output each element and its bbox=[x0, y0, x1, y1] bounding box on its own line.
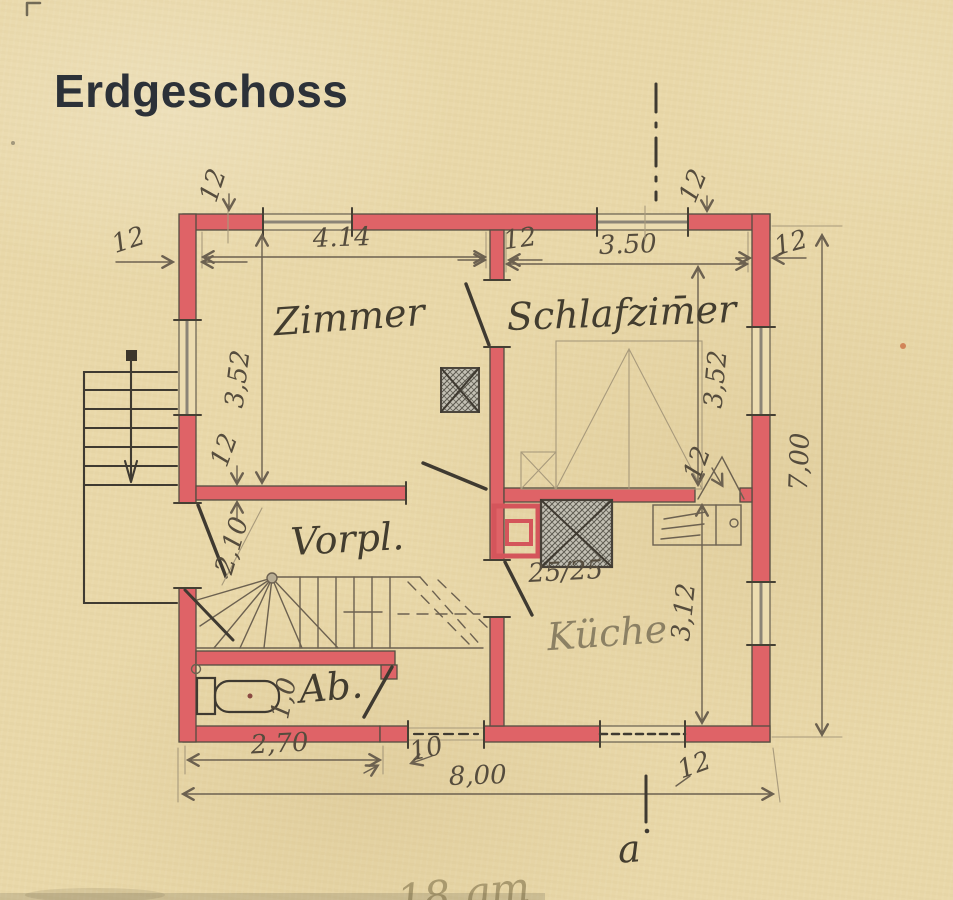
label-vorplatz: Vorpl. bbox=[289, 514, 405, 564]
window-right-schlafzimmer bbox=[747, 327, 775, 415]
kitchen-stove bbox=[653, 505, 741, 545]
wall-zimmer-vorplatz bbox=[196, 486, 406, 500]
window-bottom-kueche bbox=[600, 721, 685, 747]
wall-top-mid bbox=[352, 214, 597, 230]
section-marker-a: a bbox=[616, 826, 642, 871]
dim-house-depth: 7,00 bbox=[784, 432, 816, 491]
paper-stain bbox=[900, 343, 906, 349]
door-pivot-mark bbox=[730, 519, 738, 527]
dim-schlafzimmer-width: 3.50 bbox=[598, 229, 657, 261]
stair-upper-flight-dashed bbox=[398, 577, 490, 648]
label-zimmer: Zimmer bbox=[271, 290, 429, 345]
window-right-kueche bbox=[747, 582, 775, 645]
dim-chimney: 25/25 bbox=[526, 555, 603, 589]
floorplan-drawing: 4.14 3.50 3,52 3,52 7,00 3,12 2,70 bbox=[0, 0, 953, 900]
interior-stair bbox=[185, 573, 490, 648]
wall-bottom-pier bbox=[380, 726, 408, 742]
dim-pier: 10 bbox=[407, 731, 446, 767]
scanned-floorplan-page: Erdgeschoss bbox=[0, 0, 953, 900]
ab-door-leaf bbox=[364, 667, 392, 717]
callout-12-vorplatz-wall: 12 bbox=[205, 430, 245, 471]
label-kueche: Küche bbox=[545, 607, 669, 659]
dim-ab-width: 2,70 bbox=[249, 728, 309, 761]
zimmer-door-leaf bbox=[423, 463, 486, 489]
stair-newel bbox=[267, 573, 277, 583]
wall-thickness-callouts: 12 12 12 12 12 12 12 12 bbox=[108, 165, 811, 786]
wall-center-a bbox=[490, 230, 504, 280]
callout-12-center: 12 bbox=[501, 222, 538, 256]
label-abort: Ab. bbox=[294, 662, 364, 712]
footer-note: 18 qm bbox=[395, 862, 533, 900]
dim-house-width: 8,00 bbox=[448, 760, 507, 792]
wall-left-a bbox=[179, 214, 196, 320]
window-left-zimmer bbox=[174, 320, 201, 415]
callout-12-left: 12 bbox=[108, 221, 149, 260]
stair-winders bbox=[197, 578, 338, 648]
dim-schlafzimmer-depth: 3,52 bbox=[699, 349, 734, 409]
bed-outline bbox=[521, 341, 702, 489]
flue-inner bbox=[507, 521, 531, 544]
exterior-stair bbox=[84, 350, 177, 603]
wall-right-a bbox=[752, 214, 770, 327]
wall-bottom-c bbox=[685, 726, 770, 742]
wall-right-b bbox=[752, 415, 770, 582]
callout-12-bottom-right: 12 bbox=[674, 746, 715, 786]
dim-zimmer-depth: 3,52 bbox=[220, 348, 257, 409]
schlafzimmer-door-leaf bbox=[466, 284, 489, 345]
dim-kueche-depth: 3,12 bbox=[666, 582, 702, 643]
wall-bottom-b bbox=[484, 726, 600, 742]
wall-center-c bbox=[490, 617, 504, 726]
dim-vorplatz-diag: 2,10 bbox=[209, 514, 255, 579]
chimney-zimmer bbox=[441, 368, 479, 412]
section-line: a bbox=[616, 84, 656, 872]
callout-12-schlaf-corner: 12 bbox=[678, 443, 718, 484]
wall-left-b bbox=[179, 415, 196, 503]
callout-12-corner-right: 12 bbox=[771, 225, 811, 263]
wall-vorplatz-ab bbox=[196, 651, 395, 665]
callout-12-top-left: 12 bbox=[194, 165, 233, 206]
dim-zimmer-width: 4.14 bbox=[311, 222, 371, 254]
label-schlafzimmer: Schlafzim̄er bbox=[506, 287, 740, 339]
